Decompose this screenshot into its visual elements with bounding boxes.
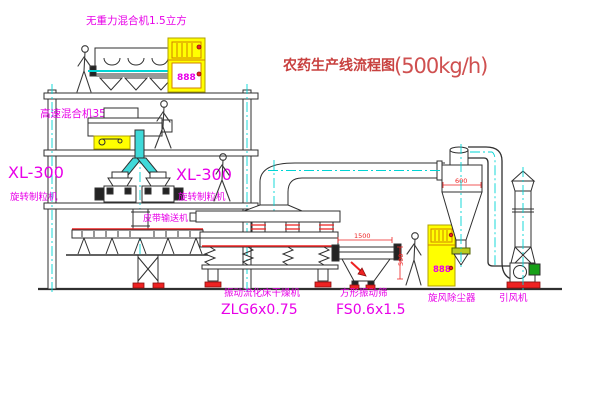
control-cabinet-left: 888: [168, 38, 205, 92]
cyclone-outlet-top: [450, 147, 468, 153]
granulator-flange: [150, 172, 166, 178]
granulator-hopper: [108, 178, 132, 186]
belt-conveyor: 皮带输送机: [66, 209, 208, 288]
conveyor-deck: [72, 230, 203, 238]
discharge-cone: [125, 78, 147, 90]
indicator-lamp: [449, 266, 453, 270]
fan-base: [507, 282, 540, 288]
granulator-motor: [95, 188, 104, 200]
base-pad: [205, 282, 221, 287]
exhaust-stack-and-fan: 引风机: [499, 167, 540, 304]
dryer-hood: [196, 211, 340, 222]
springs: [205, 247, 329, 265]
base-pad: [133, 283, 144, 288]
title-capacity: (500kg/h): [394, 54, 487, 78]
fluid-bed-dryer: 振动流化床干燥机 ZLG6x0.75: [190, 211, 340, 318]
dryer-foot: [208, 269, 218, 281]
floor-slab-top: [44, 93, 258, 99]
screen-length-dim: 1500: [354, 232, 371, 240]
dryer-exhaust-duct: [244, 160, 456, 212]
dryer-foot: [318, 269, 328, 281]
dryer-model-label: ZLG6x0.75: [221, 302, 298, 318]
indicator-lamp: [449, 233, 453, 237]
dryer-base: [202, 265, 338, 269]
drawing-svg: 无重力混合机1.5立方 888 高速混合机350: [0, 0, 600, 403]
mixer-housing: [88, 118, 162, 136]
fan-label: 引风机: [499, 292, 528, 304]
base-pad: [153, 283, 164, 288]
screen-height-dim: 500: [397, 254, 405, 266]
support-trestle: [138, 255, 158, 283]
vibrating-screen: 1500 500 方形振动筛 FS0.6x1.5: [332, 232, 406, 318]
granulator-detail: [163, 188, 169, 194]
cyclone-label: 旋风除尘器: [428, 292, 476, 304]
screen-deck: [336, 247, 396, 259]
discharge-cone: [100, 78, 122, 90]
granulator-detail: [107, 188, 113, 194]
granulator-detail: [145, 188, 151, 194]
floor-slab-low: [44, 203, 258, 209]
screen-end-block: [332, 245, 339, 261]
screen-hopper: [342, 259, 390, 281]
granulator-left-name-label: 旋转制粒机: [10, 191, 58, 203]
mixer-hopper: [104, 108, 138, 118]
indicator-lamp: [197, 72, 201, 76]
screen-model-label: FS0.6x1.5: [336, 302, 406, 318]
hood-flange: [190, 213, 196, 221]
granulator-left-model-label: XL-300: [8, 163, 64, 182]
cad-flow-diagram: 无重力混合机1.5立方 888 高速混合机350: [0, 0, 600, 403]
title-chinese: 农药生产线流程图: [282, 57, 395, 74]
dryer-name-label: 振动流化床干燥机: [224, 287, 301, 299]
granulator-right-name-label: 旋转制粒机: [178, 191, 226, 203]
dryer-connectors: [251, 222, 334, 232]
dryer-body: [200, 232, 338, 247]
screen-name-label: 方形振动筛: [340, 287, 388, 299]
control-cabinet-right: 888: [428, 225, 455, 286]
base-pad: [315, 282, 331, 287]
duct-inner-wall: [288, 178, 440, 205]
cabinet-display: 888: [433, 265, 451, 275]
gravity-mixer-label: 无重力混合机1.5立方: [86, 14, 187, 27]
operator-figure-top-floor: [77, 46, 91, 92]
fan-motor: [529, 264, 540, 275]
screen-foot: [368, 281, 374, 285]
feed-chute: [135, 130, 144, 158]
screen-foot: [352, 281, 358, 285]
drawing-title: 农药生产线流程图 (500kg/h): [282, 54, 487, 78]
granulator-detail: [125, 188, 131, 194]
granulator-hopper: [146, 178, 170, 186]
granulator-flange: [112, 172, 128, 178]
operator-figure-ground: [406, 233, 421, 285]
belt-conveyor-label: 皮带输送机: [143, 212, 188, 224]
indicator-lamp: [197, 45, 201, 49]
cabinet-display: 888: [177, 73, 196, 83]
granulator-left: [95, 172, 136, 202]
